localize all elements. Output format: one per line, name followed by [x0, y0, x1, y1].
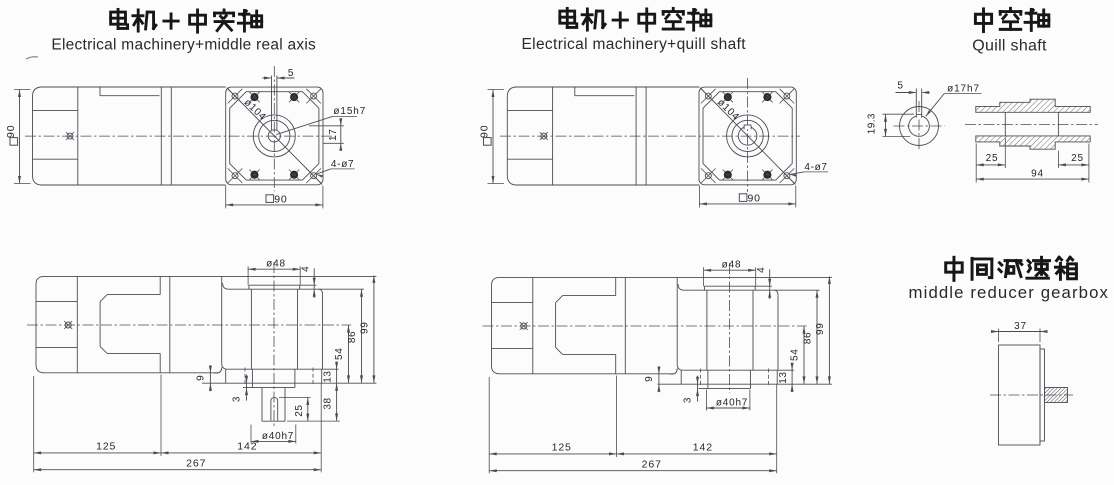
svg-text:5: 5 [288, 68, 294, 79]
svg-text:17: 17 [328, 129, 339, 141]
svg-text:ø15h7: ø15h7 [333, 106, 366, 117]
svg-text:ø40h7: ø40h7 [262, 431, 294, 442]
svg-text:25: 25 [986, 153, 999, 164]
svg-text:ø40h7: ø40h7 [716, 398, 748, 409]
svg-text:Quill shaft: Quill shaft [972, 37, 1047, 54]
svg-text:Electrical machinery+quill sha: Electrical machinery+quill shaft [521, 36, 746, 53]
svg-text:54: 54 [334, 348, 345, 360]
svg-text:99: 99 [815, 323, 826, 335]
svg-text:90: 90 [274, 194, 287, 206]
svg-text:86: 86 [347, 331, 358, 343]
svg-text:37: 37 [1014, 321, 1027, 332]
svg-text:middle reducer gearbox: middle reducer gearbox [909, 283, 1110, 302]
svg-text:90: 90 [5, 125, 17, 138]
svg-text:267: 267 [642, 458, 662, 470]
svg-text:ø48: ø48 [722, 260, 742, 271]
svg-text:4: 4 [756, 267, 767, 273]
svg-text:9: 9 [195, 375, 206, 381]
svg-text:99: 99 [359, 322, 370, 334]
svg-text:9: 9 [644, 376, 655, 382]
svg-text:142: 142 [237, 441, 257, 453]
svg-text:13: 13 [323, 370, 334, 382]
svg-text:25: 25 [1071, 153, 1084, 164]
svg-text:ø17h7: ø17h7 [947, 83, 980, 94]
svg-text:25: 25 [294, 404, 305, 416]
svg-text:4: 4 [301, 266, 312, 272]
svg-text:38: 38 [323, 397, 334, 409]
svg-text:54: 54 [790, 349, 801, 361]
svg-text:ø48: ø48 [266, 259, 286, 270]
svg-text:5: 5 [897, 81, 903, 92]
svg-text:267: 267 [186, 457, 206, 469]
svg-text:90: 90 [748, 193, 761, 205]
svg-text:19.3: 19.3 [867, 113, 878, 134]
svg-text:13: 13 [778, 371, 789, 383]
svg-text:125: 125 [552, 442, 572, 454]
svg-text:3: 3 [683, 397, 694, 403]
svg-text:94: 94 [1031, 168, 1044, 179]
svg-text:86: 86 [803, 332, 814, 344]
svg-text:90: 90 [478, 125, 490, 138]
svg-text:3: 3 [232, 396, 243, 402]
svg-text:125: 125 [96, 441, 116, 453]
svg-text:Electrical machinery+middle re: Electrical machinery+middle real axis [51, 36, 316, 53]
svg-text:142: 142 [693, 442, 713, 454]
